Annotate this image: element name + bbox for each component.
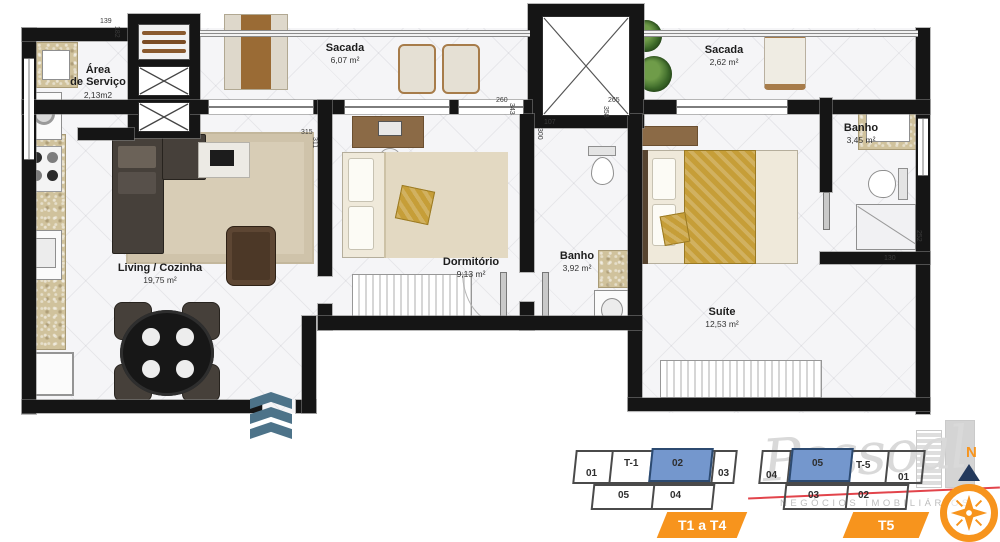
room-area: 3,92 m² [546,264,608,274]
dimension: 107 [544,119,556,126]
balcony-table [224,14,288,90]
room-label-servico: Área de Serviço 2,13m2 [52,64,144,100]
plate [176,360,194,378]
wall [318,316,642,330]
dimension: 315 [301,129,313,136]
room-area: 2,62 m² [688,58,760,68]
wall [628,398,930,411]
dimension: 139 [100,18,112,25]
compass-rose-icon [948,492,990,534]
window [24,58,34,160]
room-name: Sacada [300,42,390,54]
dimension: 252 [915,230,922,242]
room-label-banho-suite: Banho 3,45 m² [830,122,892,146]
dimension: 265 [608,97,620,104]
kitchen-sink-basin [34,238,56,268]
wall [302,316,316,413]
room-name: Sacada [688,44,760,56]
tag-label: T5 [878,517,894,533]
grill-skewer [142,49,186,53]
tag-label: T1 a T4 [678,517,726,533]
unit-label: 04 [670,490,681,501]
floorplan-page: { "floorplan": { "rooms": { "servico": {… [0,0,1000,541]
entry-chevron-icon [250,422,292,439]
room-area: 6,07 m² [300,56,390,66]
window [208,100,314,114]
room-name: de Serviço [52,76,144,88]
grill-skewer [142,31,186,35]
wall [22,400,262,413]
unit-label: 02 [858,490,869,501]
laptop-icon [210,150,234,166]
room-label-living: Living / Cozinha 19,75 m² [104,262,216,286]
toilet [868,170,896,198]
window [918,118,928,176]
tag-t1-a-t4: T1 a T4 [657,512,748,538]
room-label-banho-social: Banho 3,92 m² [546,250,608,274]
unit-label: 05 [618,490,629,501]
bed-blanket [684,150,756,264]
elevator-icon [138,102,190,132]
room-name: Dormitório [418,256,524,268]
balcony-railing [644,30,918,37]
balcony-railing [200,30,530,37]
unit-label: 02 [672,458,683,469]
room-label-sacada1: Sacada 6,07 m² [300,42,390,66]
keyplan-t5: 04 05 T-5 01 03 02 T5 [754,446,929,541]
door-leaf [823,192,830,230]
plate [176,328,194,346]
dimension: 182 [113,26,120,38]
plate [142,328,160,346]
room-area: 19,75 m² [104,276,216,286]
unit-label: 03 [808,490,819,501]
window [344,100,450,114]
room-name: Banho [830,122,892,134]
balcony-armchair [764,32,806,90]
burner [47,152,58,163]
wall [78,128,134,140]
pillow [348,206,374,250]
armchair [226,226,276,286]
wall [628,114,642,410]
balcony-chair [442,44,480,94]
toilet [591,157,614,185]
unit-label: 05 [812,458,823,469]
corner-table [30,352,74,396]
compass: N [936,440,1000,541]
room-area: 12,53 m² [686,320,758,330]
room-label-dormitorio: Dormitório 9,13 m² [418,256,524,280]
unit-label: 03 [718,468,729,479]
room-area: 3,45 m² [830,136,892,146]
dimension: 130 [884,255,896,262]
room-area: 9,13 m² [418,270,524,280]
unit-label: 01 [898,472,909,483]
sofa-cushion [118,146,156,168]
dimension: 358 [602,106,609,118]
suite-wardrobe [660,360,822,398]
wall [820,252,930,264]
wall [916,28,930,414]
north-arrow-icon [958,464,980,481]
sofa-cushion [118,172,156,194]
laptop-icon [378,121,402,136]
dimension: 343 [508,103,515,115]
elevator-icon [138,66,190,96]
room-name: Suíte [686,306,758,318]
room-label-sacada2: Sacada 2,62 m² [688,44,760,68]
wall [318,100,332,276]
gold-cushion [395,185,435,225]
room-name: Living / Cozinha [104,262,216,274]
window [676,100,788,114]
burner [47,170,58,181]
unit-label: T-5 [856,460,870,471]
plate [142,360,160,378]
gold-cushion [660,212,691,246]
wall [520,114,534,272]
toilet-tank [588,146,616,156]
keyplan-t1: 01 T-1 02 03 05 04 T1 a T4 [570,446,745,541]
room-label-suite: Suíte 12,53 m² [686,306,758,330]
pillow [348,158,374,202]
dimension: 260 [496,97,508,104]
balcony-chair [398,44,436,94]
tag-t5: T5 [843,512,930,538]
unit-label: T-1 [624,458,638,469]
pillow [652,158,676,200]
room-name: Área [52,64,144,76]
unit-label: 04 [766,470,777,481]
dimension: 300 [536,128,543,140]
compass-north-label: N [966,444,977,461]
dimension: 311 [311,137,318,148]
room-name: Banho [546,250,608,262]
dining-table [120,310,214,396]
unit-label: 01 [586,468,597,479]
toilet-tank [898,168,908,200]
exterior-void [316,330,628,413]
suite-dresser [640,126,698,146]
room-area: 2,13m2 [52,91,144,101]
grill-skewer [142,40,186,44]
